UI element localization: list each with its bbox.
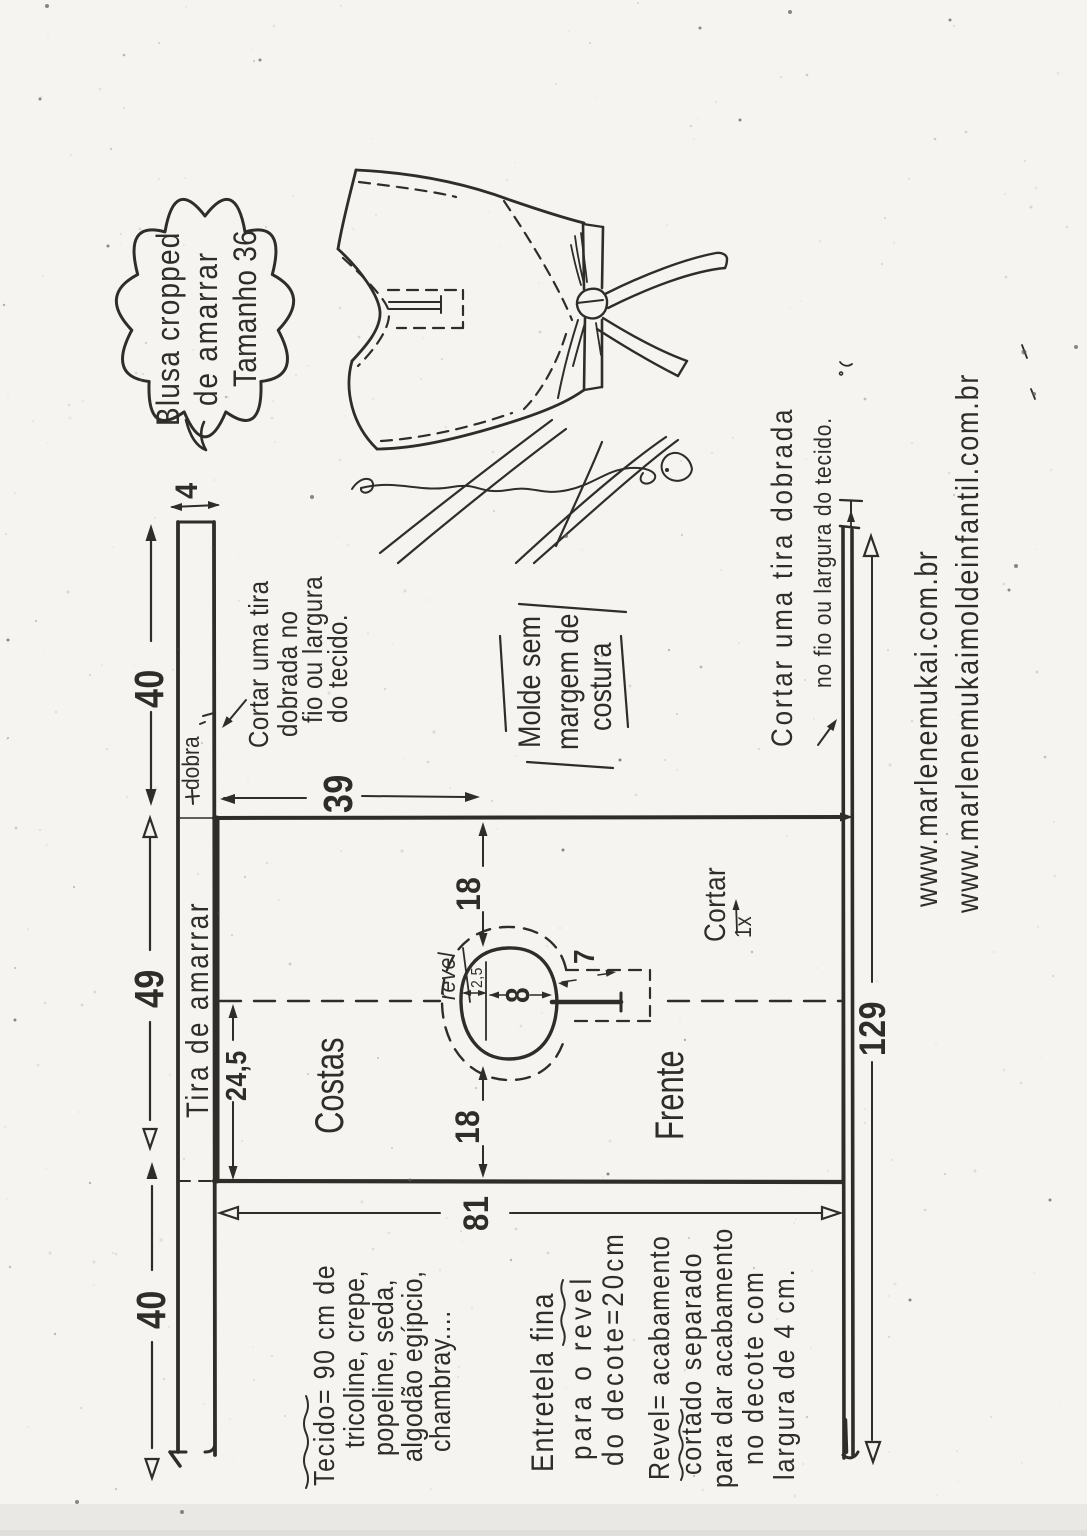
- svg-text:no fio ou largura do tecido.: no fio ou largura do tecido.: [810, 417, 837, 688]
- svg-text:largura de 4 cm.: largura de 4 cm.: [768, 1267, 800, 1480]
- svg-text:Cortar uma tira: Cortar uma tira: [245, 580, 275, 748]
- svg-text:Costas: Costas: [306, 1038, 352, 1134]
- svg-text:18: 18: [448, 1110, 486, 1144]
- svg-text:popeline, seda,: popeline, seda,: [367, 1279, 399, 1456]
- svg-text:dobra: dobra: [178, 736, 205, 790]
- svg-text:para o revel: para o revel: [564, 1275, 597, 1460]
- svg-text:revel: revel: [434, 952, 461, 1000]
- svg-text:Tecido= 90 cm de: Tecido= 90 cm de: [308, 1264, 340, 1486]
- svg-text:4: 4: [169, 482, 205, 499]
- svg-text:tricoline, crepe,: tricoline, crepe,: [338, 1270, 370, 1448]
- svg-text:para dar acabamento: para dar acabamento: [706, 1228, 738, 1488]
- svg-text:Cortar uma tira dobrada: Cortar uma tira dobrada: [765, 407, 798, 747]
- svg-text:18: 18: [449, 877, 487, 911]
- svg-text:39: 39: [315, 774, 361, 813]
- svg-text:Frente: Frente: [646, 1050, 692, 1140]
- svg-text:24,5: 24,5: [220, 1050, 252, 1101]
- svg-text:no decote com: no decote com: [737, 1270, 769, 1465]
- svg-text:1x: 1x: [730, 916, 757, 938]
- svg-text:de amarrar: de amarrar: [189, 251, 224, 406]
- svg-text:81: 81: [457, 1196, 496, 1231]
- svg-text:8: 8: [499, 987, 537, 1003]
- svg-text:do decote=20cm: do decote=20cm: [596, 1231, 629, 1466]
- svg-text:margem de: margem de: [551, 614, 585, 750]
- svg-text:49: 49: [126, 969, 172, 1008]
- svg-text:129: 129: [853, 1001, 894, 1056]
- svg-text:7: 7: [568, 949, 600, 964]
- svg-text:40: 40: [128, 1290, 174, 1329]
- svg-text:www.marlenemukaimoldeinfantil.: www.marlenemukaimoldeinfantil.com.br: [951, 373, 985, 914]
- svg-text:Tamanho 36: Tamanho 36: [228, 230, 263, 387]
- svg-text:2,5: 2,5: [468, 967, 486, 988]
- svg-text:Tira de amarrar: Tira de amarrar: [181, 901, 216, 1118]
- svg-text:chambray....: chambray....: [424, 1310, 456, 1452]
- svg-text:do tecido.: do tecido.: [324, 614, 354, 723]
- svg-text:Cortar: Cortar: [698, 867, 731, 942]
- svg-text:Entretela fina: Entretela fina: [526, 1292, 560, 1472]
- svg-text:www.marlenemukai.com.br: www.marlenemukai.com.br: [910, 550, 944, 908]
- svg-text:Molde sem: Molde sem: [513, 616, 547, 748]
- svg-text:Blusa cropped: Blusa cropped: [151, 231, 186, 426]
- svg-text:40: 40: [126, 669, 172, 708]
- svg-text:cortado separado: cortado separado: [675, 1252, 707, 1475]
- svg-text:Revel= acabamento: Revel= acabamento: [643, 1235, 675, 1480]
